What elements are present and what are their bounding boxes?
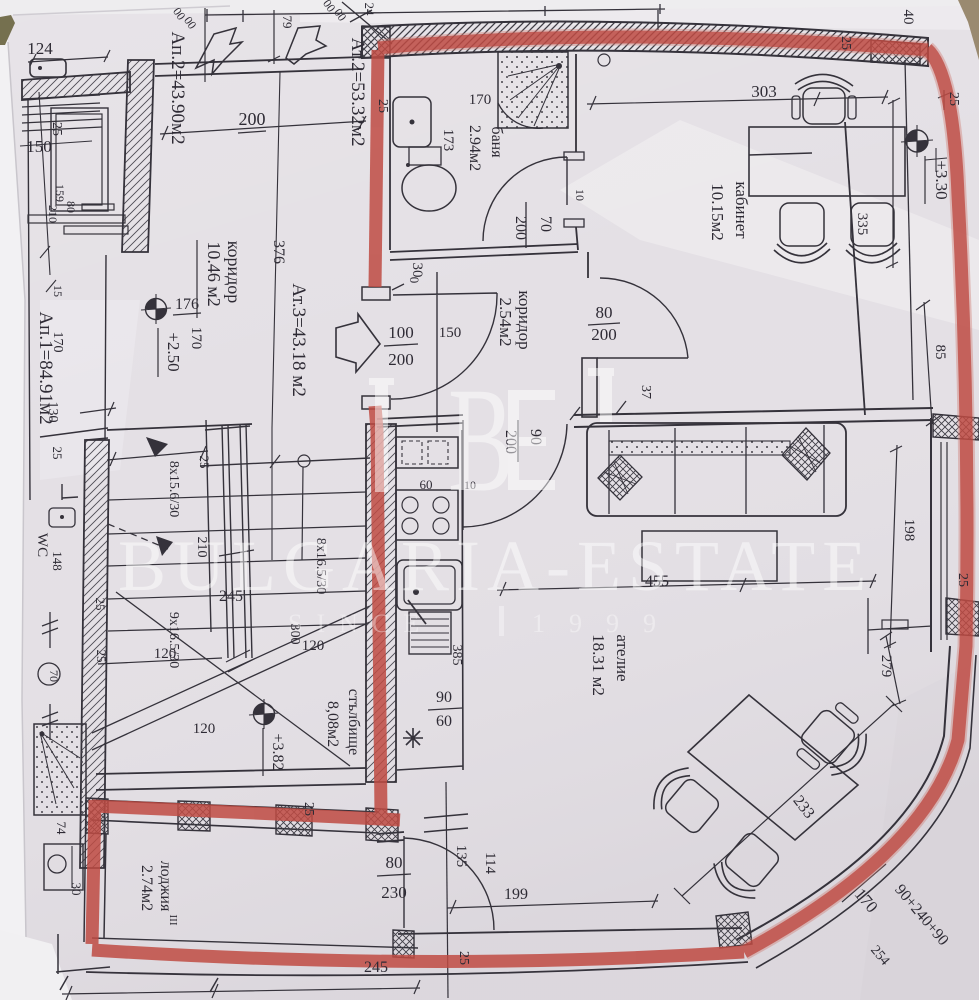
svg-text:120: 120: [302, 638, 325, 654]
svg-text:114: 114: [482, 852, 498, 874]
svg-text:25: 25: [49, 122, 64, 136]
svg-text:+2.50: +2.50: [164, 332, 183, 371]
svg-text:2.94м2: 2.94м2: [466, 125, 483, 171]
svg-text:376: 376: [270, 240, 287, 264]
svg-text:200: 200: [388, 350, 414, 369]
svg-text:1999: 1999: [532, 609, 680, 638]
svg-text:150: 150: [439, 325, 462, 341]
svg-text:коридор: коридор: [224, 241, 244, 304]
svg-text:+3.82: +3.82: [269, 733, 286, 770]
svg-text:385: 385: [449, 645, 464, 666]
svg-text:25: 25: [50, 447, 65, 460]
svg-text:8,08м2: 8,08м2: [324, 701, 341, 747]
svg-text:135: 135: [453, 845, 469, 868]
svg-text:124: 124: [27, 39, 53, 58]
svg-text:25: 25: [94, 650, 109, 663]
svg-text:80: 80: [386, 853, 403, 872]
svg-text:30: 30: [409, 263, 425, 278]
svg-text:279: 279: [878, 655, 894, 678]
svg-text:WC: WC: [34, 533, 50, 557]
svg-text:245: 245: [364, 959, 388, 976]
svg-text:Ап.2=43.90м2: Ап.2=43.90м2: [167, 31, 188, 144]
svg-text:148: 148: [50, 551, 65, 571]
svg-text:15: 15: [51, 285, 65, 297]
svg-text:79: 79: [280, 16, 295, 29]
svg-text:10: 10: [573, 189, 587, 201]
svg-text:B: B: [448, 358, 514, 523]
svg-text:159: 159: [53, 184, 67, 202]
svg-text:Ат.3=43.18 м2: Ат.3=43.18 м2: [288, 283, 309, 397]
svg-text:173: 173: [440, 129, 456, 152]
svg-text:8x15.6/30: 8x15.6/30: [166, 461, 181, 517]
svg-text:170: 170: [188, 327, 204, 350]
svg-text:90: 90: [436, 689, 452, 706]
svg-text:85: 85: [932, 345, 948, 360]
svg-text:III: III: [167, 915, 179, 926]
svg-text:170: 170: [50, 332, 65, 353]
svg-text:стълбище: стълбище: [345, 689, 362, 755]
svg-text:120: 120: [193, 721, 216, 737]
svg-text:170: 170: [469, 92, 492, 108]
svg-text:70: 70: [537, 216, 554, 232]
svg-text:130: 130: [45, 402, 60, 423]
svg-text:100: 100: [388, 323, 414, 342]
svg-text:2.54м2: 2.54м2: [496, 297, 515, 346]
svg-text:коридор: коридор: [515, 290, 534, 349]
svg-text:199: 199: [504, 886, 528, 903]
svg-text:230: 230: [381, 883, 407, 902]
svg-text:18.31 м2: 18.31 м2: [589, 634, 608, 696]
svg-text:80: 80: [64, 201, 78, 213]
svg-text:176: 176: [175, 296, 199, 313]
svg-text:37: 37: [638, 385, 653, 399]
svg-text:60: 60: [420, 477, 433, 492]
svg-text:Ат.2=53.32м2: Ат.2=53.32м2: [347, 38, 368, 147]
svg-text:210: 210: [46, 205, 60, 223]
svg-text:25: 25: [946, 92, 961, 106]
svg-text:25: 25: [456, 951, 471, 965]
svg-text:0: 0: [407, 277, 422, 284]
svg-text:10.15м2: 10.15м2: [708, 183, 727, 241]
svg-text:198: 198: [901, 519, 917, 542]
svg-text:25: 25: [955, 573, 970, 587]
svg-text:303: 303: [751, 82, 777, 101]
svg-text:25: 25: [301, 802, 316, 816]
svg-text:200: 200: [239, 109, 266, 129]
svg-text:25: 25: [93, 598, 108, 611]
svg-text:60: 60: [436, 713, 452, 730]
svg-text:25: 25: [197, 456, 212, 469]
svg-text:2.74м2: 2.74м2: [138, 865, 155, 911]
svg-text:80: 80: [596, 303, 613, 322]
svg-text:25: 25: [838, 36, 853, 50]
svg-text:кабинет: кабинет: [732, 181, 751, 239]
svg-text:335: 335: [854, 213, 870, 236]
svg-text:25: 25: [375, 99, 390, 113]
svg-text:74: 74: [54, 822, 69, 836]
svg-text:24: 24: [362, 3, 377, 17]
svg-text:200: 200: [591, 325, 617, 344]
svg-text:10.46 м2: 10.46 м2: [204, 241, 224, 306]
svg-text:70: 70: [47, 670, 61, 682]
svg-text:BULGARIA-ESTATE: BULGARIA-ESTATE: [118, 526, 873, 606]
svg-text:9x16.5/30: 9x16.5/30: [166, 612, 181, 668]
svg-text:40: 40: [900, 10, 916, 25]
svg-text:150: 150: [26, 137, 52, 156]
svg-text:30: 30: [69, 883, 84, 896]
svg-text:+3.30: +3.30: [932, 160, 951, 199]
svg-text:лоджия: лоджия: [157, 861, 174, 912]
svg-text:ателие: ателие: [613, 634, 632, 681]
svg-text:SINCE: SINCE: [288, 609, 433, 638]
svg-text:баня: баня: [488, 126, 505, 158]
